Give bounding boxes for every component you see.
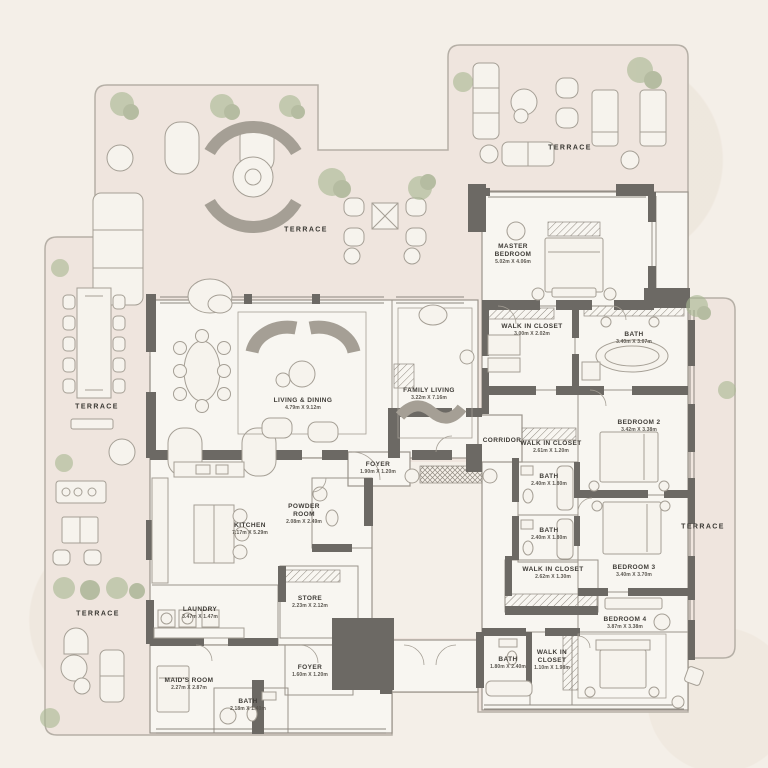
terrace-label-bottom-left: TERRACE	[76, 611, 120, 618]
floor-plan-drawing	[0, 0, 768, 768]
terrace-label-top-right: TERRACE	[548, 145, 592, 152]
terrace-label-left: TERRACE	[75, 404, 119, 411]
floor-plan-page: MASTER BEDROOM 5.02m X 4.06m WALK IN CLO…	[0, 0, 768, 768]
terrace-label-top-middle: TERRACE	[284, 227, 328, 234]
terrace-label-right: TERRACE	[681, 524, 725, 531]
right-terrace-strip	[688, 298, 735, 658]
